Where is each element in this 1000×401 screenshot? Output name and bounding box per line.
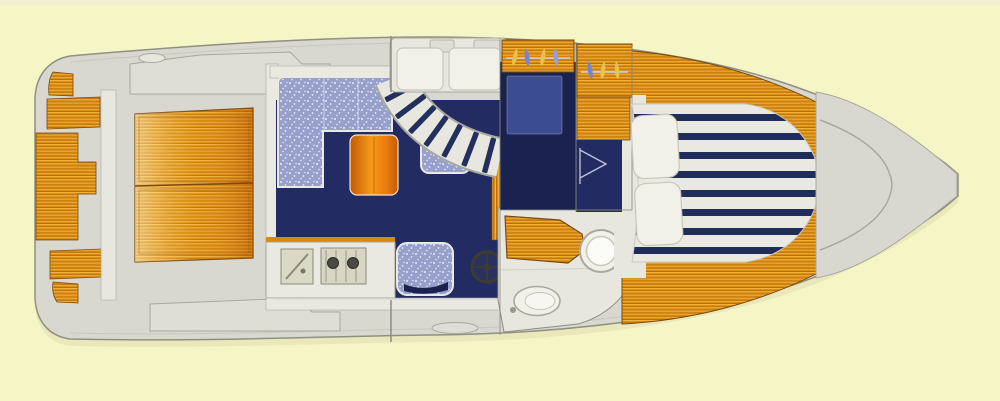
- scan-edge-strip: [0, 0, 1000, 5]
- transom-step-band: [101, 90, 116, 300]
- galley-stove: [321, 248, 366, 284]
- deck-fitting-oval: [432, 323, 478, 334]
- teak-step-wedge-top: [49, 72, 73, 96]
- boat-floor-plan: [0, 0, 1000, 401]
- mid-cabin-berth: [507, 76, 562, 134]
- helm-seat-cushion: [449, 48, 501, 90]
- hanging-locker-port: [502, 40, 574, 72]
- teak-step-wedge-bottom: [53, 282, 78, 303]
- stove-burner: [348, 258, 359, 269]
- head-sink-bowl: [587, 237, 616, 266]
- teak-step-upper: [47, 97, 100, 129]
- teak-step-lower: [50, 249, 102, 279]
- galley-bottom-wall: [266, 298, 500, 310]
- cabinet-teak-top: [577, 97, 630, 140]
- toilet-seat: [525, 293, 555, 310]
- toilet-pump-handle: [510, 307, 516, 313]
- helm-seat-cushion: [397, 48, 443, 90]
- pillow: [634, 182, 683, 246]
- stove-burner: [328, 258, 339, 269]
- deck-fitting-oval: [139, 54, 165, 63]
- sink-faucet: [301, 269, 306, 274]
- v-berth: [631, 104, 820, 262]
- wheel-hub: [484, 264, 491, 271]
- pillow: [631, 114, 680, 179]
- helm-bench: [390, 38, 508, 92]
